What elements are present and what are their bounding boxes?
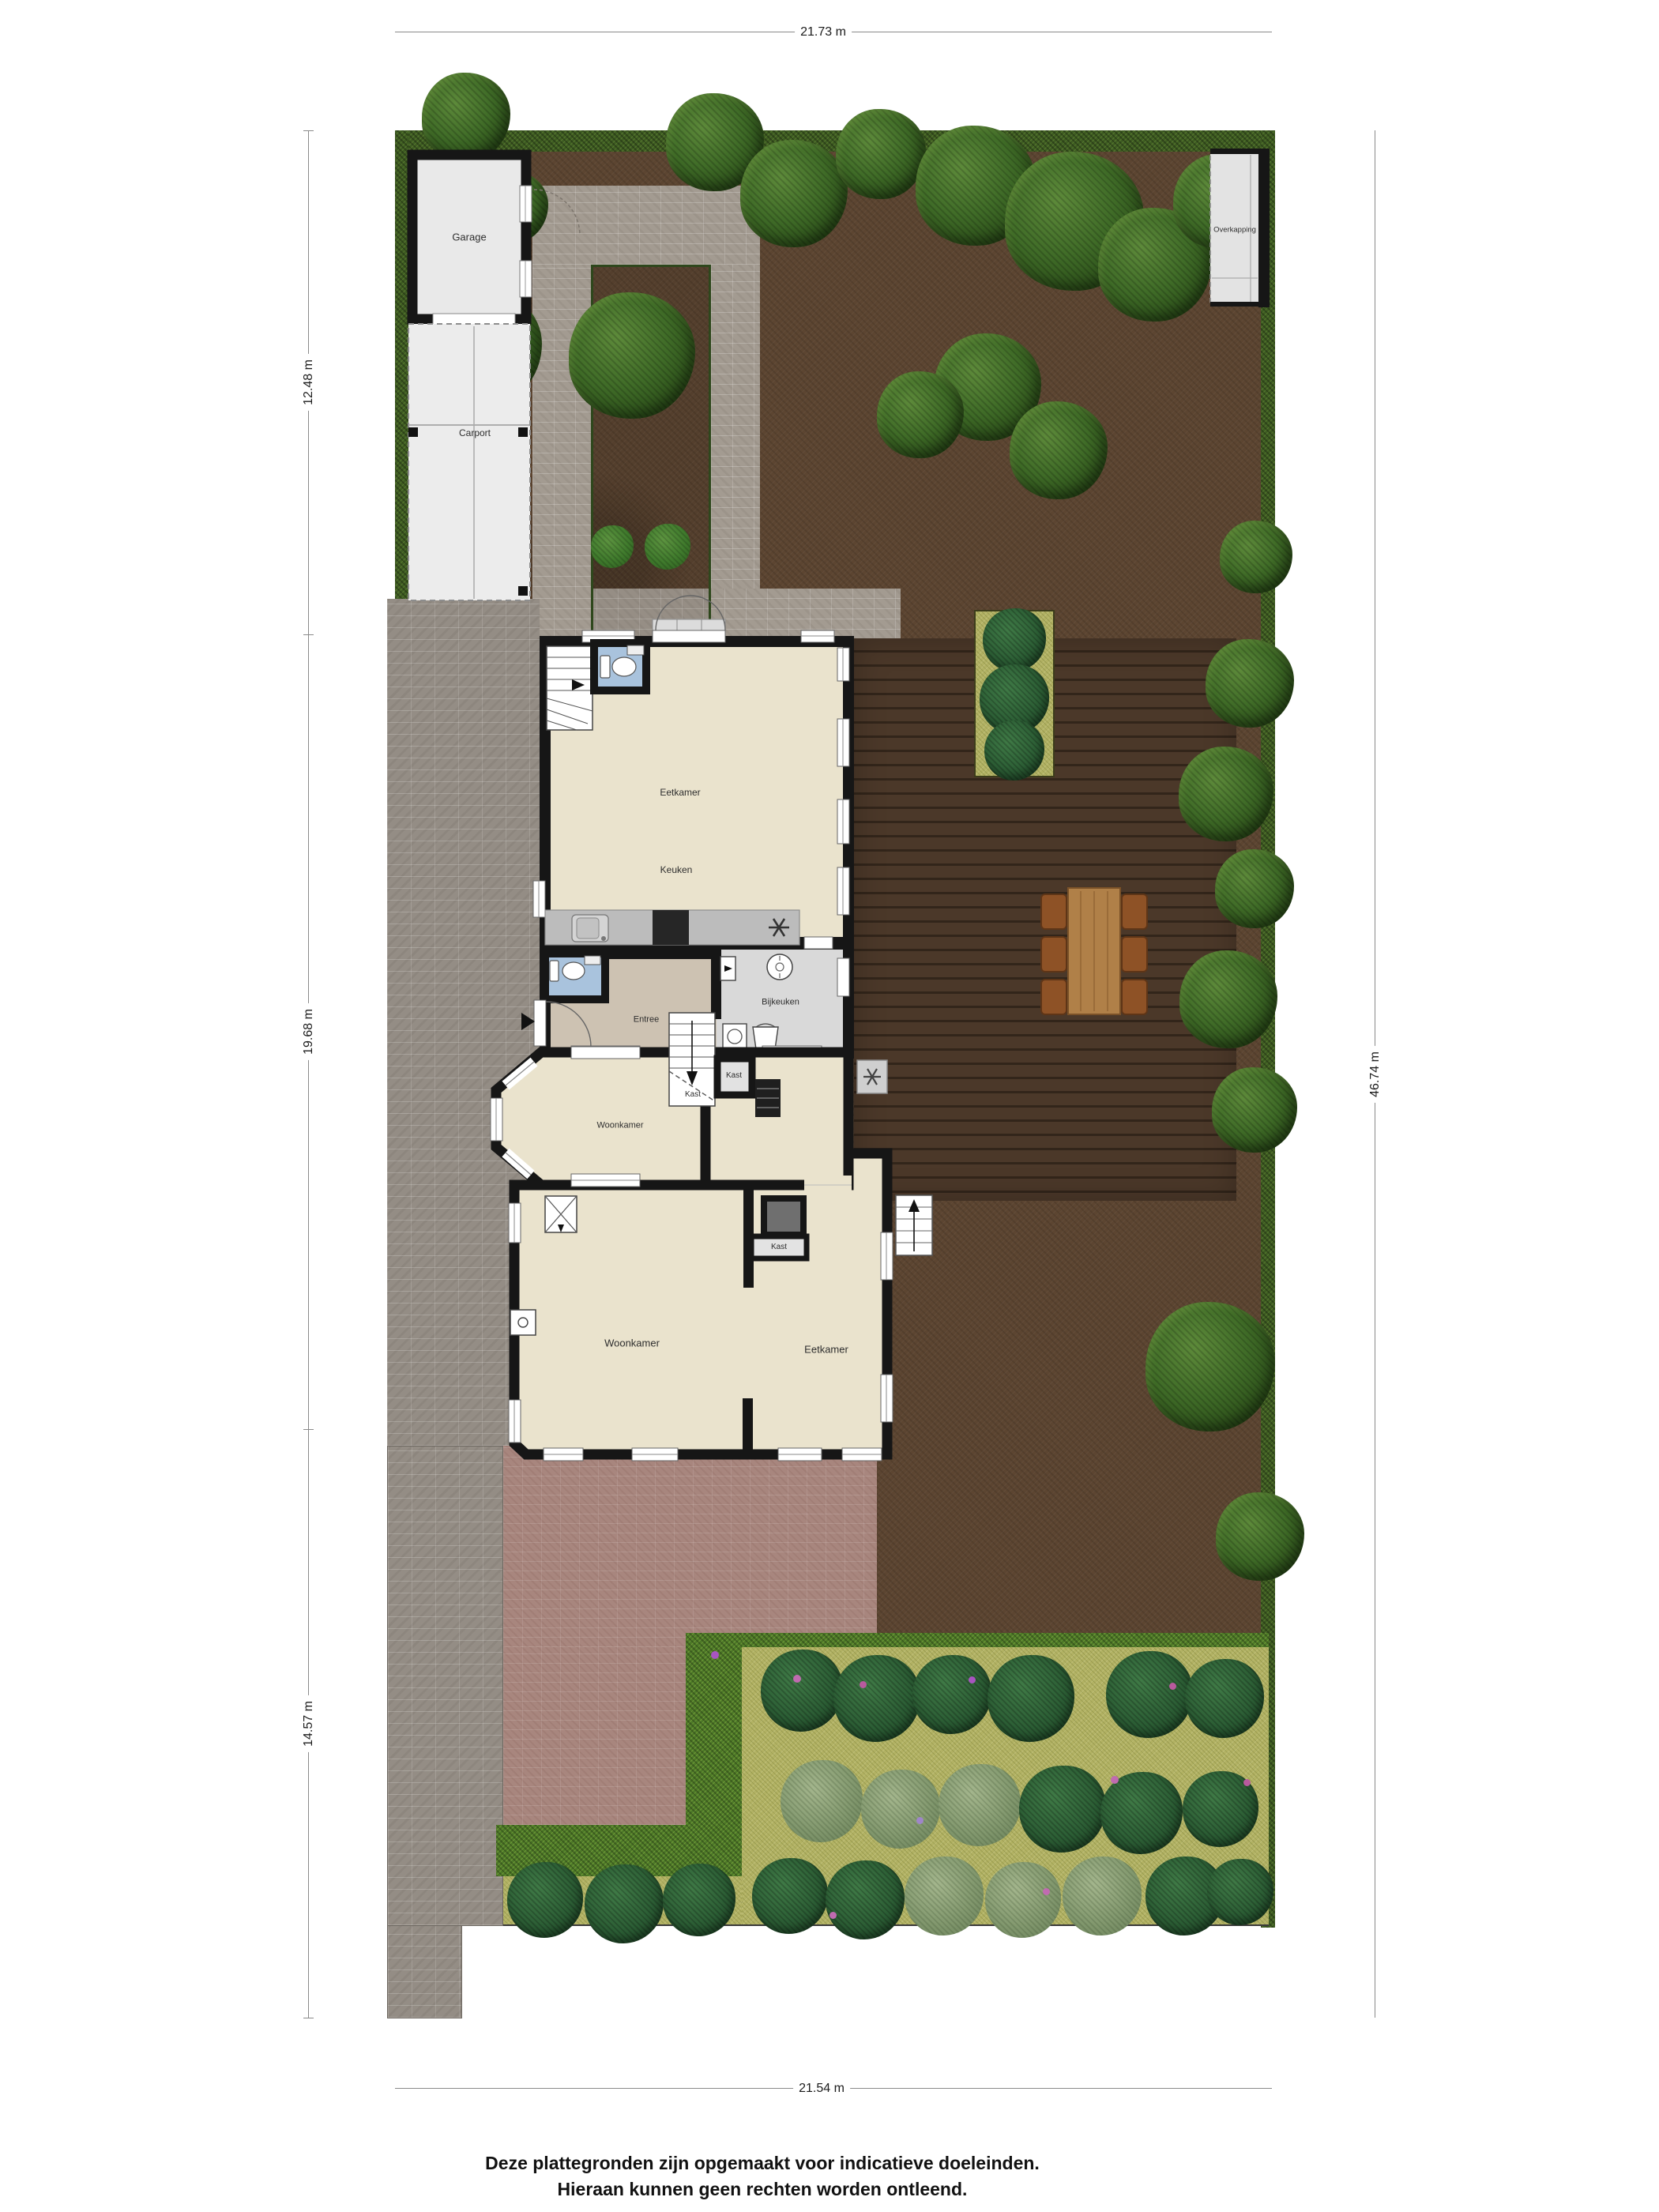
floorplan-canvas: Garage Carport Overkapping Eetkamer Keuk… — [0, 0, 1659, 2212]
dim-label-left-middle: 19.68 m — [301, 1003, 317, 1060]
disclaimer-text: Deze plattegronden zijn opgemaakt voor i… — [485, 2150, 1040, 2203]
sink — [627, 645, 644, 655]
dim-tick — [303, 2018, 314, 2018]
window — [571, 1047, 640, 1059]
dim-tick — [303, 634, 314, 635]
window — [571, 1174, 640, 1187]
room-label-closet-under-stairs: Kast — [685, 1091, 701, 1099]
toilet-bowl — [562, 962, 585, 980]
room-label-entry: Entree — [634, 1016, 659, 1025]
door-opening — [837, 958, 849, 996]
front-door-opening — [534, 1000, 546, 1046]
deck-steps — [896, 1195, 932, 1255]
toilet-room-upper — [594, 643, 646, 690]
carport-post — [518, 586, 528, 596]
dim-label-left-bottom: 14.57 m — [301, 1695, 317, 1752]
overkapping-wall — [1258, 149, 1270, 307]
garden-table — [1068, 888, 1120, 1014]
carport-outline — [408, 324, 530, 600]
heat-pump — [857, 1060, 887, 1093]
dim-label-left-top: 12.48 m — [301, 354, 317, 411]
toilet-bowl — [612, 657, 636, 676]
carport-label: Carport — [459, 428, 491, 438]
overkapping-label: Overkapping — [1213, 226, 1256, 234]
toilet-tank — [550, 961, 559, 981]
room-label-living-main: Woonkamer — [604, 1338, 660, 1349]
overkapping-wall-bottom — [1210, 302, 1270, 307]
sink — [585, 956, 600, 965]
meter-box — [510, 1310, 536, 1335]
disclaimer-line1: Deze plattegronden zijn opgemaakt voor i… — [485, 2150, 1040, 2176]
toilet-tank — [600, 656, 610, 678]
wall-stub — [743, 1398, 753, 1458]
gate-arc — [534, 190, 580, 235]
dim-tick — [303, 1429, 314, 1430]
window — [533, 881, 545, 917]
back-door-step — [653, 619, 725, 630]
back-door-opening — [653, 630, 725, 642]
plan-linework — [0, 0, 1659, 2212]
washer — [723, 1024, 747, 1049]
overkapping-wall-top — [1210, 149, 1270, 154]
cooktop — [653, 910, 689, 945]
carport-post — [518, 427, 528, 437]
disclaimer-line2: Hieraan kunnen geen rechten worden ontle… — [485, 2176, 1040, 2203]
dim-tick — [303, 130, 314, 131]
room-label-kitchen: Keuken — [660, 865, 693, 875]
wall-entry-utility — [711, 948, 721, 1019]
dim-label-top: 21.73 m — [795, 24, 852, 40]
room-label-living-bay: Woonkamer — [596, 1122, 643, 1130]
laundry-basket — [753, 1024, 778, 1049]
garage-label: Garage — [452, 232, 486, 243]
room-label-utility: Bijkeuken — [762, 999, 799, 1007]
radiator — [755, 1079, 781, 1117]
skylight-box — [545, 1196, 577, 1232]
entrance-arrow — [521, 1013, 535, 1030]
room-label-closet-hall: Kast — [726, 1072, 742, 1080]
room-label-dining-upper: Eetkamer — [660, 788, 700, 797]
door-opening — [804, 937, 833, 949]
fireplace — [764, 1198, 803, 1235]
wall-stub — [743, 1180, 754, 1288]
room-label-dining-main: Eetkamer — [804, 1345, 848, 1355]
toilet-room-entry — [545, 954, 605, 999]
window — [801, 630, 834, 642]
dim-label-bottom: 21.54 m — [793, 2081, 850, 2097]
room-label-closet-fireplace: Kast — [771, 1243, 787, 1251]
garage-door-opening — [433, 314, 515, 325]
stairs-up — [547, 646, 592, 730]
kitchen-counter — [545, 910, 799, 945]
dim-label-right: 46.74 m — [1367, 1046, 1383, 1103]
carport-post — [408, 427, 418, 437]
